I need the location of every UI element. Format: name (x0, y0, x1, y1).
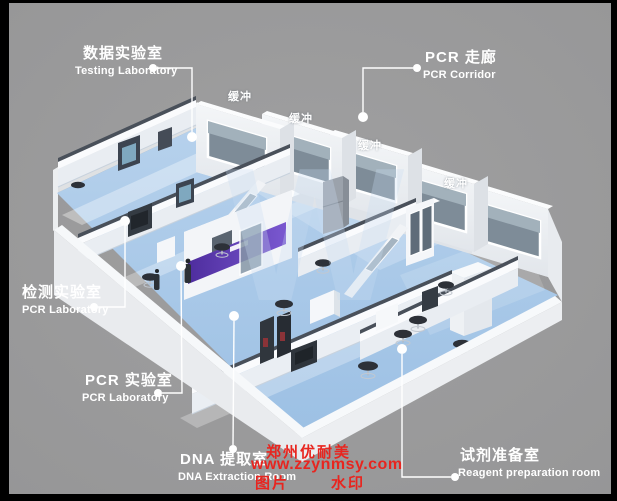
screenshot-root: W 数据实验室 Testi (0, 0, 617, 501)
callout-reagent-preparation-room: 试剂准备室 Reagent preparation room (458, 448, 600, 479)
buffer-room-label-4: 缓冲 (444, 175, 468, 191)
room-label-zh: PCR 走廊 (425, 50, 497, 67)
background-logo-watermark: W (225, 129, 405, 341)
room-label-zh: PCR 实验室 (85, 373, 173, 390)
room-label-zh: 数据实验室 (83, 46, 177, 63)
room-label-en: PCR Laboratory (22, 304, 109, 316)
room-label-en: PCR Laboratory (82, 392, 173, 404)
room-label-en: Testing Laboratory (75, 65, 177, 77)
room-label-zh: 试剂准备室 (460, 448, 600, 465)
watermark-tag-right: 水印 (331, 472, 365, 493)
buffer-room-label-2: 缓冲 (289, 110, 313, 126)
room-label-zh: 检测实验室 (22, 285, 109, 302)
room-label-en: PCR Corridor (423, 69, 497, 81)
buffer-room-label-3: 缓冲 (358, 137, 382, 153)
watermark-tag-left: 图片 (255, 472, 289, 493)
callout-pcr-corridor: PCR 走廊 PCR Corridor (423, 50, 497, 81)
buffer-room-label-1: 缓冲 (228, 88, 252, 104)
callout-inspection-laboratory: 检测实验室 PCR Laboratory (22, 285, 109, 316)
callout-testing-laboratory: 数据实验室 Testing Laboratory (75, 46, 177, 77)
room-label-en: Reagent preparation room (458, 467, 600, 479)
callout-pcr-laboratory: PCR 实验室 PCR Laboratory (82, 373, 173, 404)
